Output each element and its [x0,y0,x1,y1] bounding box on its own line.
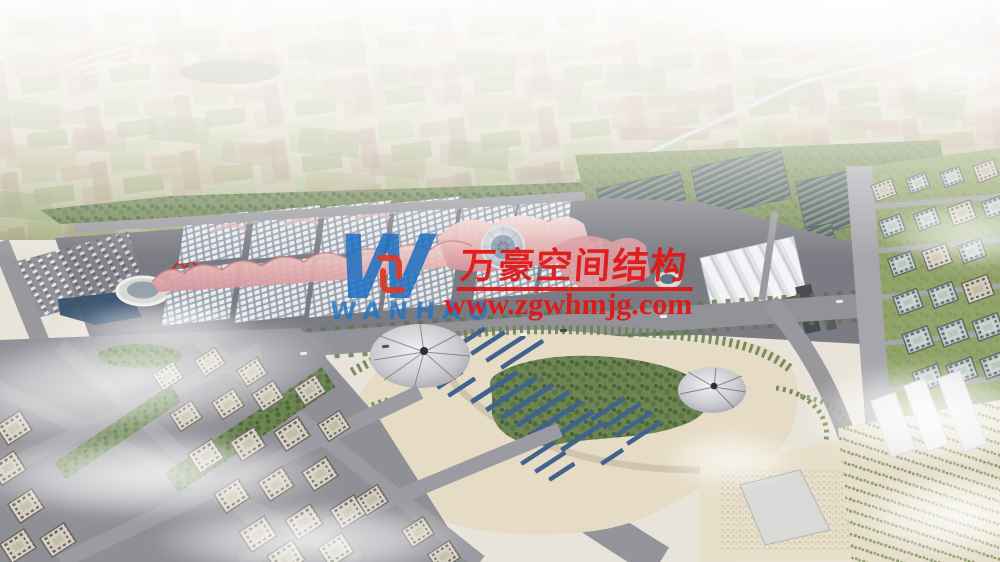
watermark-company-name: 万豪空间结构 [456,248,695,291]
membrane-cone-large [370,324,470,388]
cloud [660,430,800,490]
cloud [60,300,260,350]
logo-monogram-icon [371,253,411,295]
watermark-website: www.zgwhmjg.com [443,290,692,320]
membrane-cone-small [678,367,746,413]
aerial-rendering: W WANHAO 万豪空间结构 www.zgwhmjg.com [0,0,1000,562]
